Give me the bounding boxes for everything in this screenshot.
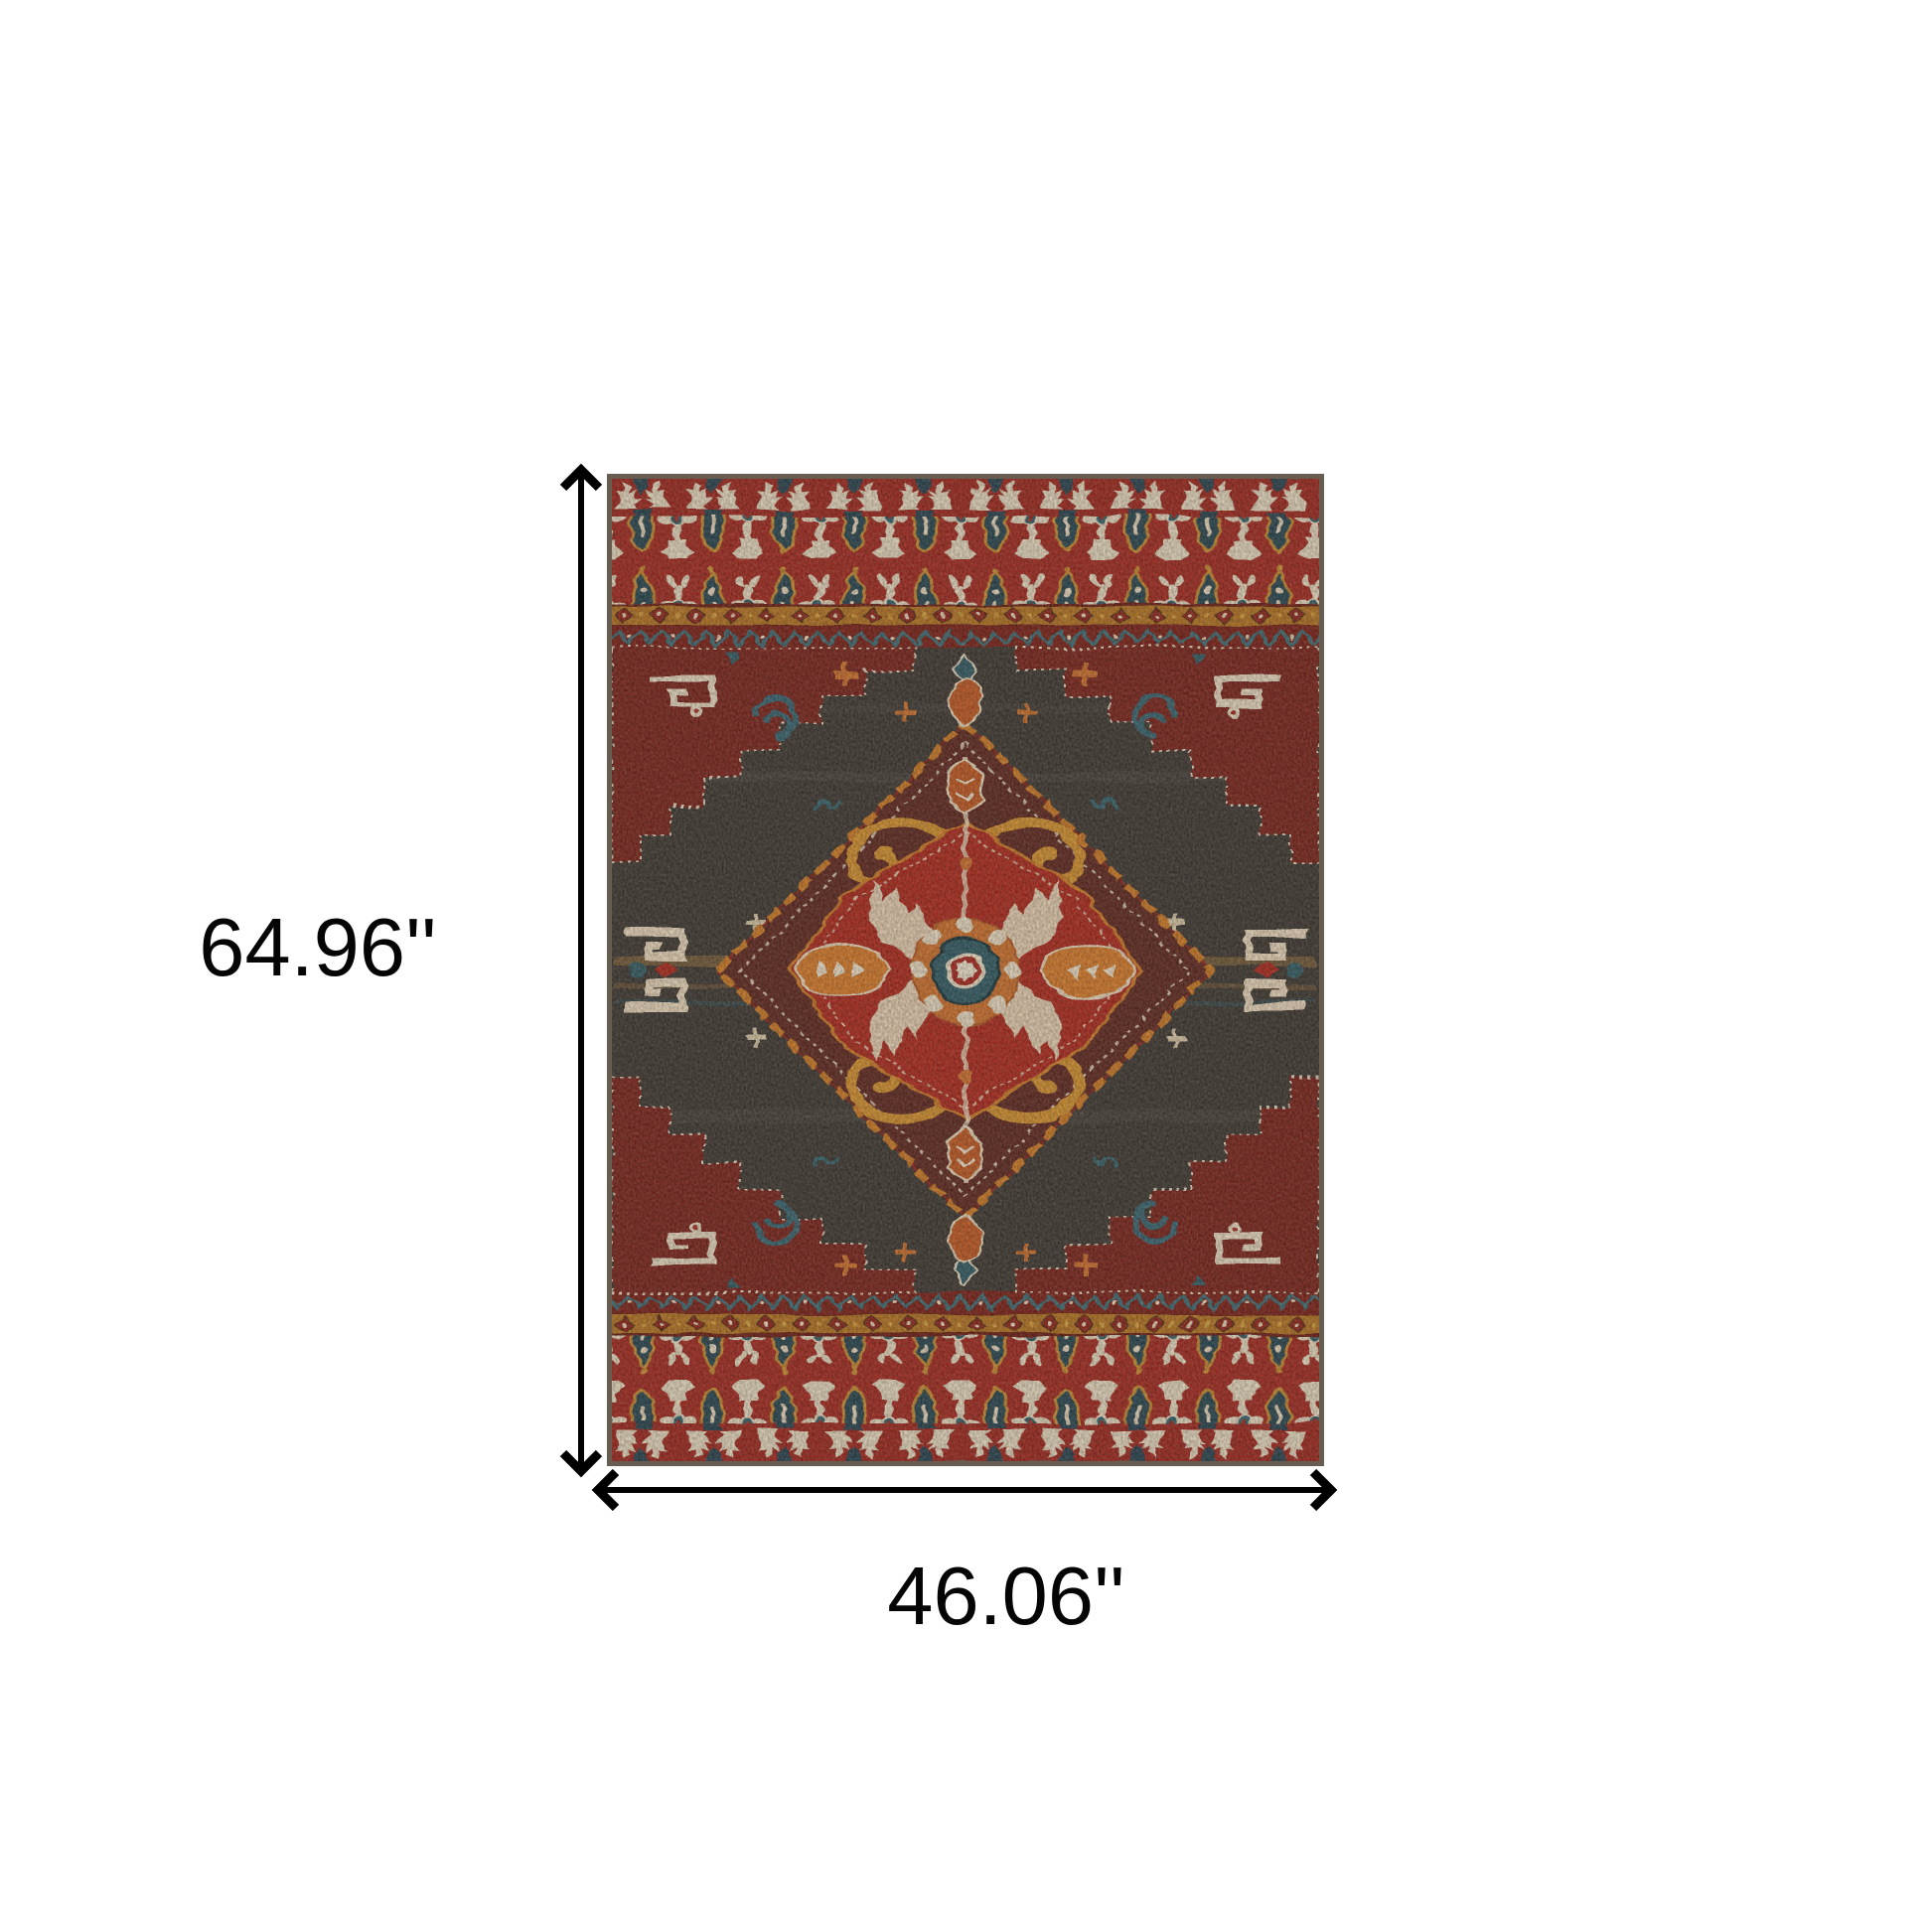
rug-art: [610, 478, 1321, 1462]
rug-image: [607, 474, 1324, 1466]
height-dimension-label: 64.96'': [129, 899, 507, 995]
horizontal-dimension-arrow: [598, 1472, 1331, 1508]
vertical-dimension-arrow: [563, 470, 599, 1471]
product-dimension-diagram: 64.96'' 46.06'': [0, 0, 1932, 1932]
rug-medallion-rosette: [911, 916, 1021, 1026]
rug-skirt-top: [610, 478, 1321, 648]
rug-skirt-bottom: [610, 1292, 1321, 1462]
width-dimension-label: 46.06'': [817, 1548, 1195, 1644]
